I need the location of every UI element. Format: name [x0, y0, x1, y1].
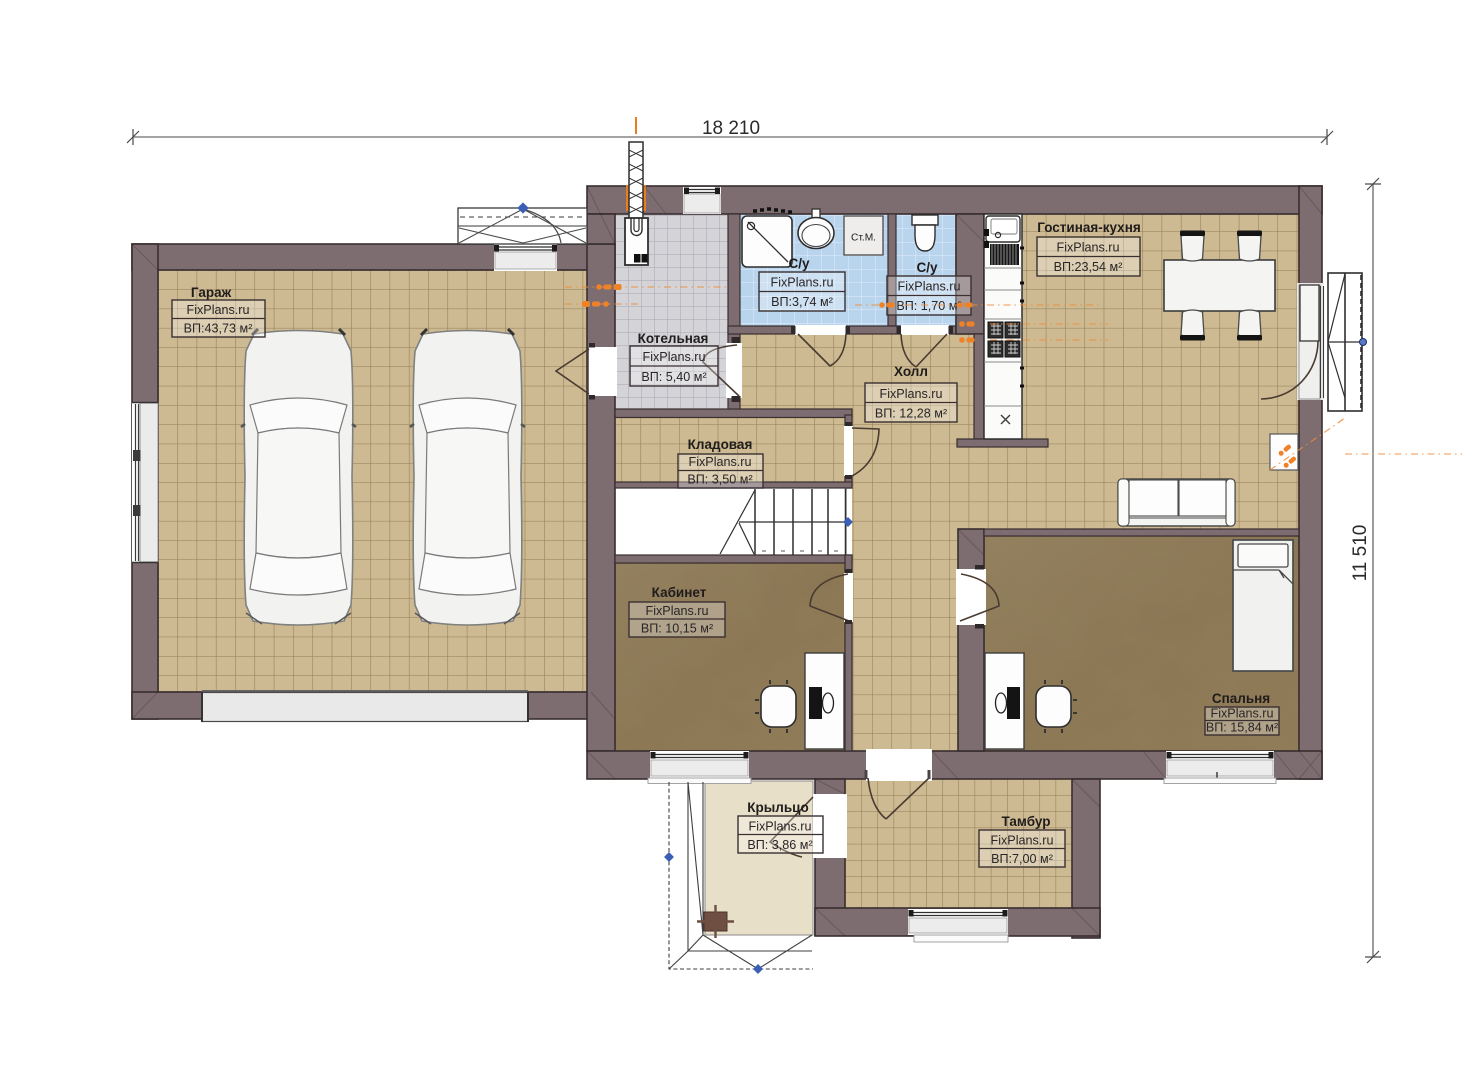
svg-text:Спальня: Спальня [1212, 691, 1270, 706]
svg-text:ВП:43,73 м²: ВП:43,73 м² [184, 322, 253, 336]
svg-text:FixPlans.ru: FixPlans.ru [880, 387, 943, 401]
svg-text:ВП:23,54 м²: ВП:23,54 м² [1054, 260, 1123, 274]
svg-text:FixPlans.ru: FixPlans.ru [646, 604, 709, 618]
svg-text:ВП: 10,15 м²: ВП: 10,15 м² [641, 622, 713, 636]
svg-text:Кладовая: Кладовая [688, 437, 753, 452]
svg-text:FixPlans.ru: FixPlans.ru [898, 280, 961, 294]
svg-text:FixPlans.ru: FixPlans.ru [689, 455, 752, 469]
svg-text:11 510: 11 510 [1350, 525, 1371, 582]
svg-text:FixPlans.ru: FixPlans.ru [749, 820, 812, 834]
svg-text:Котельная: Котельная [638, 331, 709, 346]
svg-text:ВП: 5,40 м²: ВП: 5,40 м² [641, 370, 706, 384]
svg-text:С/у: С/у [916, 260, 938, 275]
svg-text:ВП: 3,86 м²: ВП: 3,86 м² [747, 838, 812, 852]
svg-text:ВП: 15,84 м²: ВП: 15,84 м² [1206, 721, 1278, 735]
svg-text:ВП: 3,50 м²: ВП: 3,50 м² [687, 473, 752, 487]
svg-text:С/у: С/у [788, 256, 810, 271]
svg-text:Холл: Холл [894, 364, 928, 379]
svg-text:FixPlans.ru: FixPlans.ru [1057, 241, 1120, 255]
svg-text:ВП:7,00 м²: ВП:7,00 м² [991, 852, 1053, 866]
svg-text:Тамбур: Тамбур [1002, 814, 1051, 829]
svg-text:Гостиная-кухня: Гостиная-кухня [1037, 220, 1140, 235]
svg-text:Ст.М.: Ст.М. [851, 233, 876, 244]
svg-text:FixPlans.ru: FixPlans.ru [1211, 707, 1274, 721]
svg-text:ВП: 1,70 м²: ВП: 1,70 м² [896, 299, 961, 313]
svg-text:FixPlans.ru: FixPlans.ru [643, 350, 706, 364]
svg-text:FixPlans.ru: FixPlans.ru [771, 276, 834, 290]
svg-text:18 210: 18 210 [702, 118, 760, 139]
svg-text:Гараж: Гараж [191, 285, 232, 300]
svg-text:FixPlans.ru: FixPlans.ru [187, 303, 250, 317]
svg-text:ВП:3,74 м²: ВП:3,74 м² [771, 295, 833, 309]
svg-text:ВП: 12,28 м²: ВП: 12,28 м² [875, 407, 947, 421]
svg-text:Кабинет: Кабинет [652, 585, 707, 600]
svg-text:Крыльцо: Крыльцо [747, 800, 808, 815]
svg-text:FixPlans.ru: FixPlans.ru [991, 834, 1054, 848]
